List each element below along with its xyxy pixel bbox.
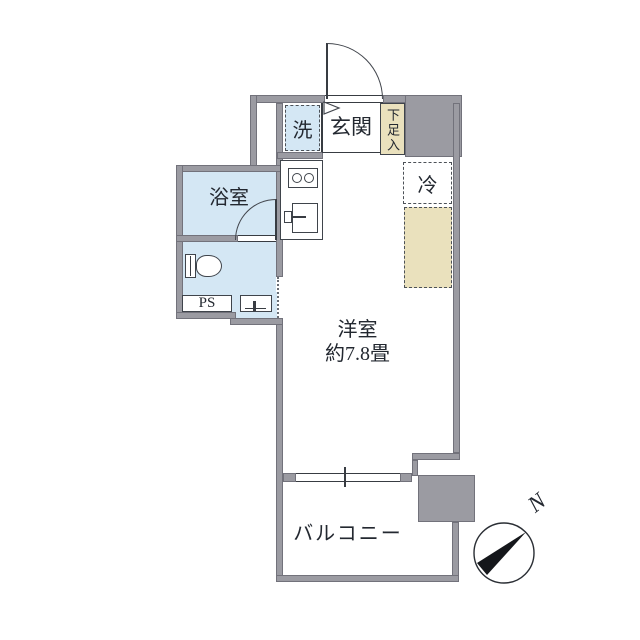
balcony-window-center-tick [344, 467, 346, 487]
wall-top-left-segment [250, 95, 325, 103]
entrance-label: 玄関 [324, 112, 378, 140]
main-room-size: 約7.8畳 [325, 342, 390, 366]
wall-sanitary-bottom-left [176, 312, 236, 319]
stove-burner-left-icon [292, 173, 302, 183]
vanity-faucet-horizontal-icon [245, 308, 266, 310]
wall-bathroom-top [176, 165, 283, 172]
wall-balcony-bottom [276, 575, 459, 582]
balcony-window [283, 473, 412, 482]
washer-cell-divider-line [321, 103, 323, 152]
washroom-folding-door [277, 277, 279, 318]
bathroom-door-threshold-bottom [238, 241, 276, 242]
toilet-tank-line-icon [190, 256, 191, 276]
wall-main-left-lower [276, 318, 283, 582]
refrigerator-label: 冷 [403, 162, 452, 204]
kitchen-sink [292, 203, 318, 233]
vanity-faucet-vertical-icon [253, 301, 256, 311]
wall-sanitary-bottom-right [230, 318, 283, 325]
wall-upper-left-vertical [250, 95, 257, 171]
washer-space-label: 洗 [285, 105, 320, 151]
compass-icon [455, 495, 565, 605]
storage-space-box [404, 207, 452, 288]
wall-notch-left [412, 460, 418, 476]
vanity-sink [240, 295, 272, 312]
shoe-cabinet-label: 下足入 [381, 106, 404, 154]
balcony-window-left-cap [283, 473, 296, 482]
toilet-bowl-icon [196, 255, 222, 277]
balcony-label: バルコニー [283, 519, 413, 543]
stove-burner-right-icon [304, 173, 314, 183]
main-room-label: 洋室 約7.8畳 [290, 316, 425, 368]
wall-under-washer [277, 152, 323, 159]
main-room-name: 洋室 [338, 318, 378, 342]
wall-notch-top [412, 453, 460, 460]
pipe-space-label: PS [182, 295, 232, 312]
balcony-window-right-cap [400, 473, 412, 482]
kitchen-faucet-lever-icon [292, 216, 306, 218]
kitchen-faucet-base-icon [284, 211, 292, 223]
bathroom-label: 浴室 [182, 183, 276, 207]
wall-bathroom-divider [176, 235, 238, 242]
entrance-door-swing-arc [327, 43, 383, 99]
floorplan-canvas: 洗 玄関 下足入 冷 浴室 PS 洋室 約7.8畳 バルコニー N [0, 0, 640, 640]
wall-right [453, 103, 460, 453]
